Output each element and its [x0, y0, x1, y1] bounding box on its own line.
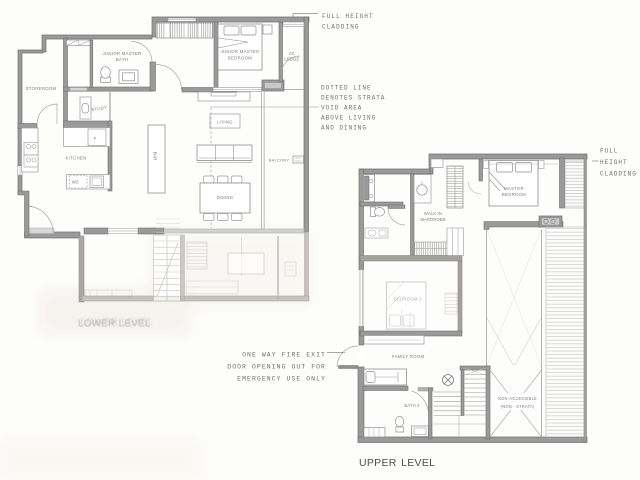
svg-text:BEDROOM 2: BEDROOM 2 — [394, 297, 422, 302]
svg-text:WALK IN: WALK IN — [424, 211, 442, 216]
svg-text:HEIGHT: HEIGHT — [600, 159, 628, 166]
svg-text:CLADDING: CLADDING — [600, 171, 637, 178]
svg-text:(NON - STRATA): (NON - STRATA) — [501, 404, 535, 409]
svg-text:FULL HEIGHT: FULL HEIGHT — [322, 13, 374, 20]
svg-text:EMERGENCY USE ONLY: EMERGENCY USE ONLY — [237, 376, 326, 383]
svg-text:DOTTED LINE: DOTTED LINE — [321, 85, 372, 92]
svg-text:AND DINING: AND DINING — [321, 125, 367, 132]
svg-text:STOREROOM: STOREROOM — [26, 86, 57, 91]
svg-text:LIVING: LIVING — [217, 120, 233, 125]
svg-text:WARDROBE: WARDROBE — [420, 217, 446, 222]
svg-text:BAR: BAR — [153, 152, 158, 161]
svg-text:ONE WAY FIRE EXIT: ONE WAY FIRE EXIT — [242, 352, 326, 359]
svg-text:BALCONY: BALCONY — [269, 158, 290, 163]
svg-text:WD: WD — [72, 180, 79, 185]
svg-text:MASTER: MASTER — [504, 186, 524, 191]
svg-text:STUDY: STUDY — [91, 105, 108, 113]
svg-text:F: F — [94, 136, 97, 141]
svg-text:DINING: DINING — [217, 195, 234, 200]
svg-text:KITCHEN: KITCHEN — [66, 156, 87, 161]
svg-text:VOID AREA: VOID AREA — [321, 105, 362, 112]
svg-text:FULL: FULL — [600, 148, 618, 155]
svg-text:LOWER LEVEL: LOWER LEVEL — [81, 317, 154, 328]
svg-text:BEDROOM: BEDROOM — [228, 56, 252, 61]
svg-text:LEDGE: LEDGE — [285, 57, 300, 62]
svg-text:UPPER LEVEL: UPPER LEVEL — [359, 457, 435, 469]
svg-text:JUNIOR MASTER: JUNIOR MASTER — [221, 49, 260, 54]
svg-text:BEDROOM: BEDROOM — [502, 192, 526, 197]
svg-text:BATH 2: BATH 2 — [404, 403, 420, 408]
svg-text:AC: AC — [289, 51, 295, 56]
svg-text:BATH: BATH — [116, 57, 128, 62]
svg-text:DOOR OPENING OUT FOR: DOOR OPENING OUT FOR — [227, 364, 326, 371]
svg-text:FAMILY ROOM: FAMILY ROOM — [392, 354, 425, 359]
svg-text:ABOVE LIVING: ABOVE LIVING — [321, 115, 376, 122]
svg-text:JUNIOR MASTER: JUNIOR MASTER — [103, 51, 142, 56]
svg-text:DENOTES STRATA: DENOTES STRATA — [321, 95, 385, 102]
svg-text:NON-ACCESSIBLE: NON-ACCESSIBLE — [498, 396, 537, 401]
svg-text:CLADDING: CLADDING — [322, 24, 360, 31]
